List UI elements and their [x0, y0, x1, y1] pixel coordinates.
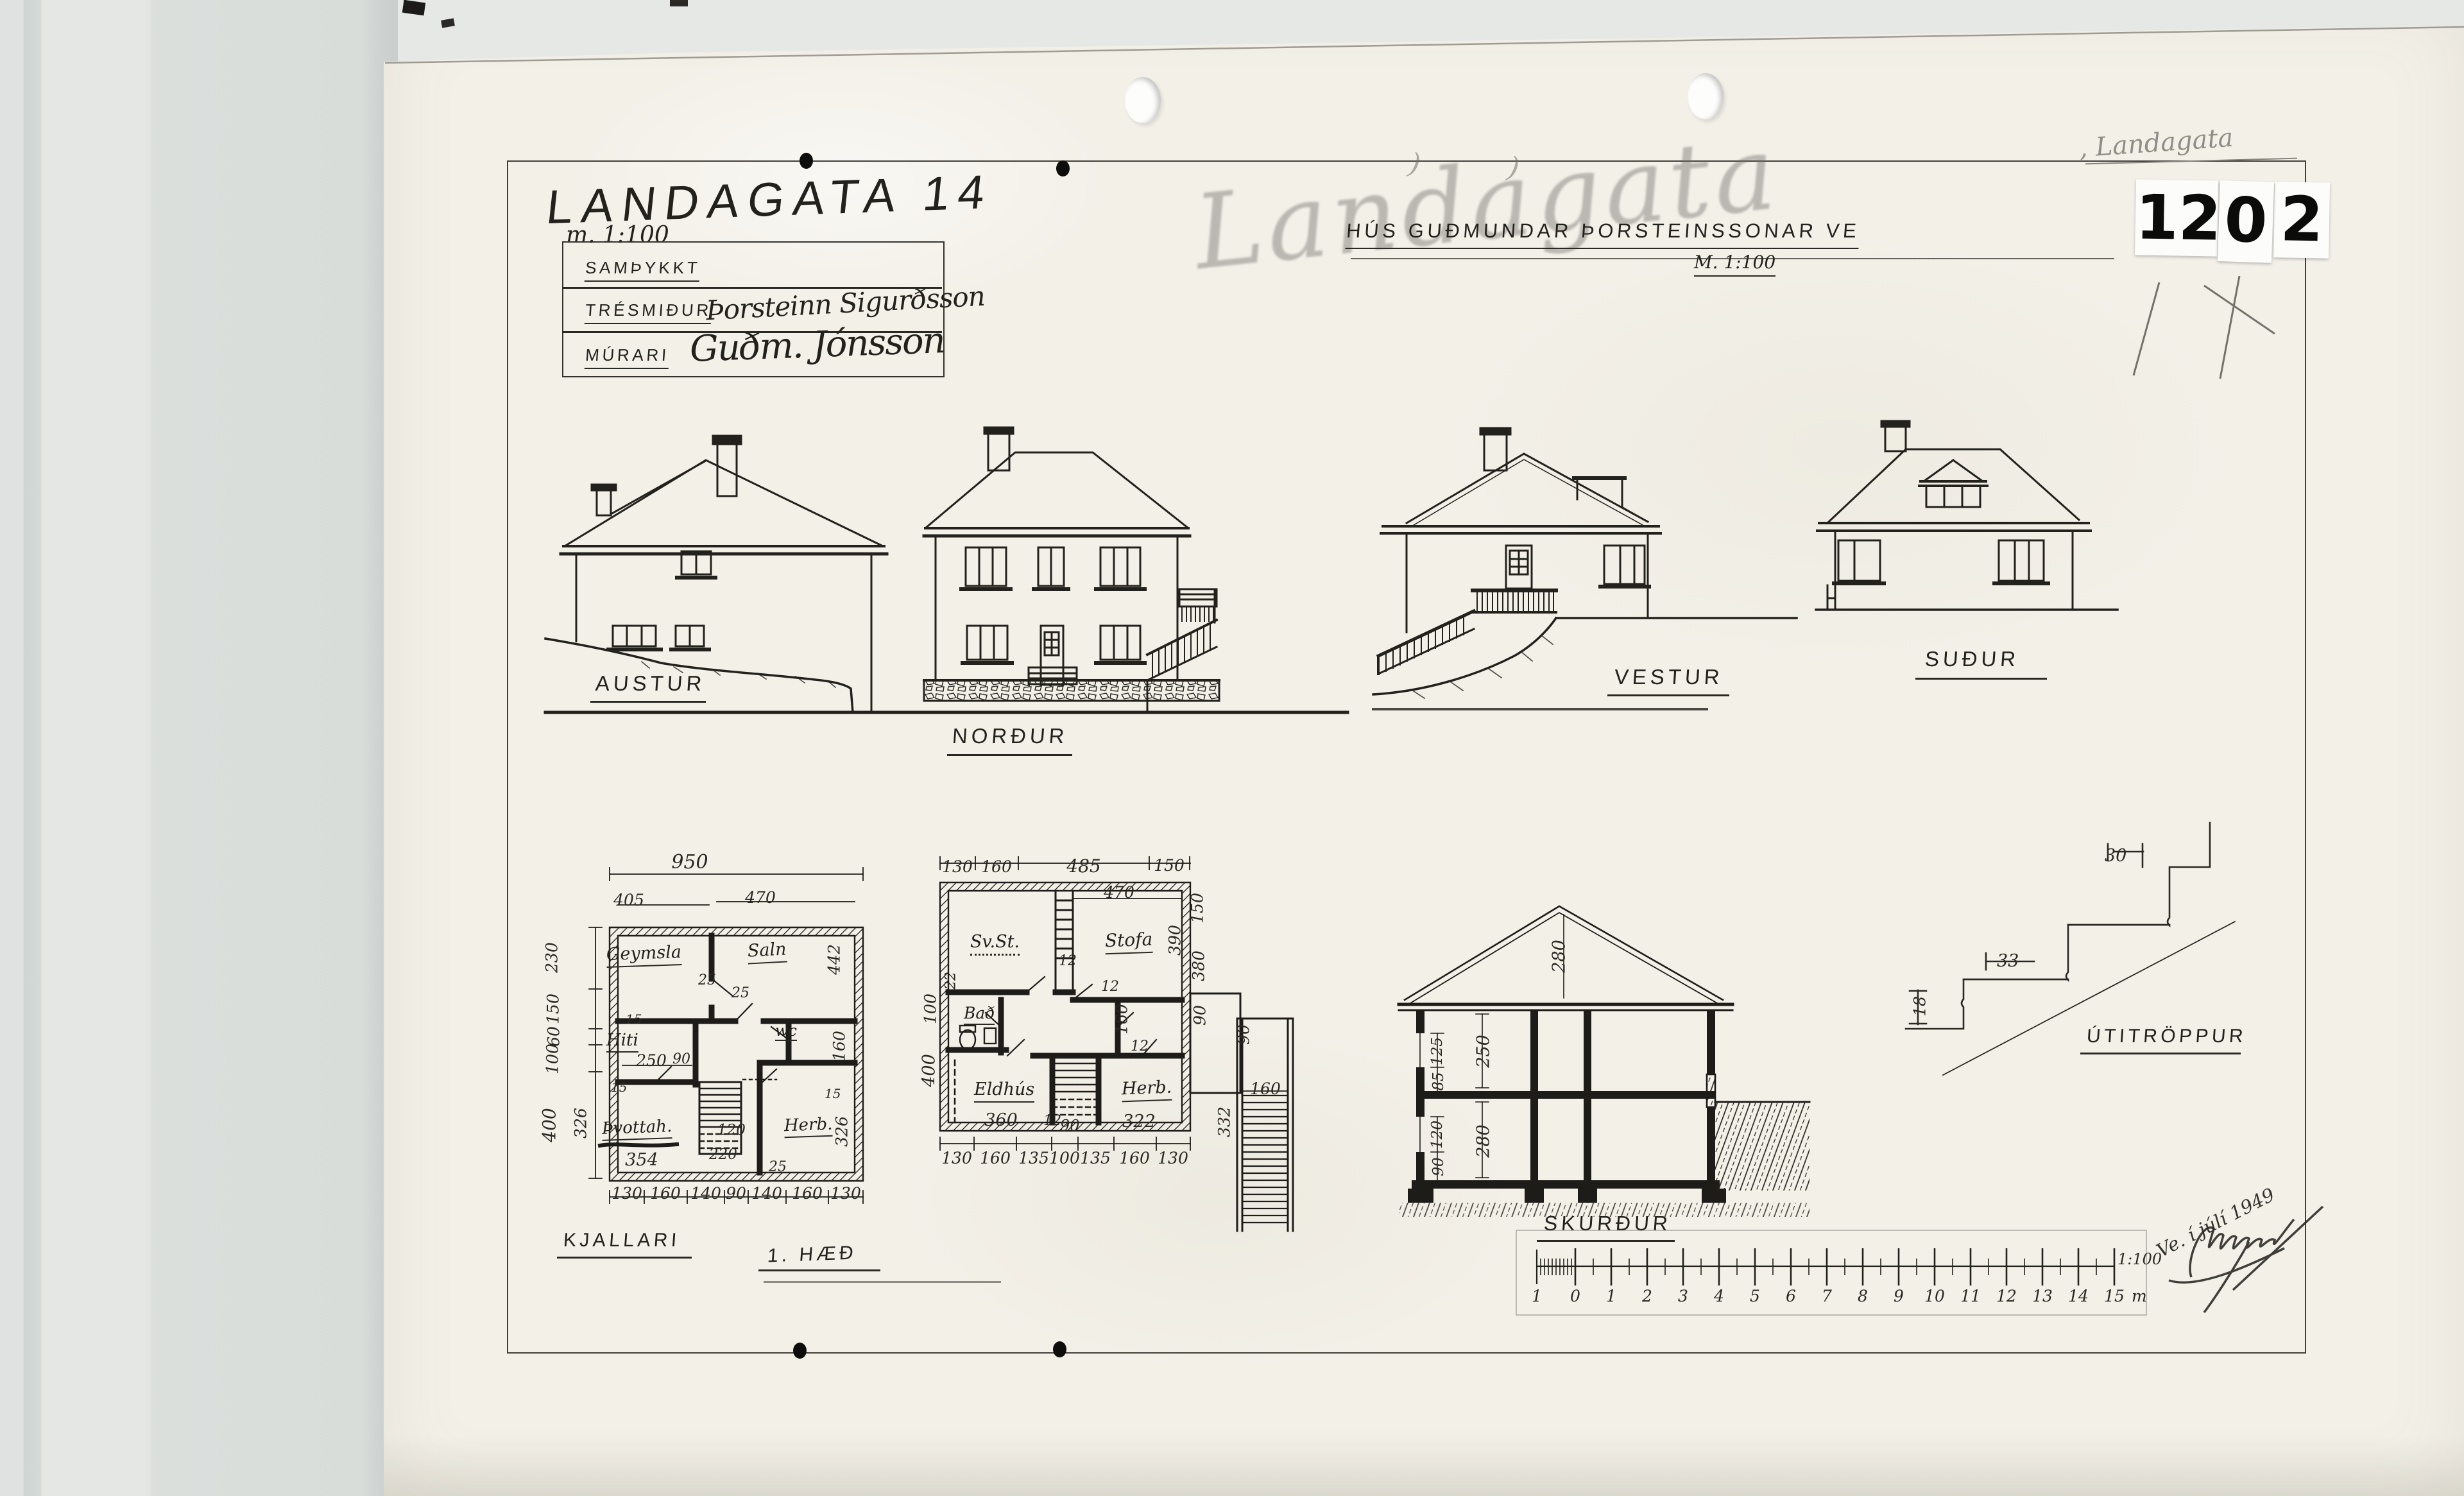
room-label-bad: Bað: [964, 1004, 995, 1025]
stamp-digits-12: 12: [2135, 179, 2218, 256]
dim: 22: [943, 972, 959, 990]
label-underline: [1607, 694, 1729, 696]
dim: 160: [1113, 1004, 1131, 1035]
label-underline: [1915, 678, 2047, 680]
scanner-background: [0, 0, 398, 1496]
plan-kjallari-drawing: [545, 854, 879, 1226]
dim: 360: [984, 1110, 1018, 1130]
dim: 100: [921, 993, 940, 1024]
dim: 15: [626, 1011, 642, 1027]
elevation-nordur-label: NORÐUR: [952, 724, 1069, 748]
scale-bar: [1511, 1223, 2159, 1325]
mason-signature: Guðm. Jónsson: [689, 320, 945, 370]
scan-artifact: [670, 0, 688, 6]
elevation-austur-label: AUSTUR: [595, 671, 706, 696]
registration-dot: [1053, 1341, 1066, 1357]
dim: 400: [539, 1108, 560, 1142]
room-label-tvottahus: Þvottah.: [601, 1117, 672, 1141]
dim: 140: [690, 1184, 721, 1203]
dim: 485: [1066, 855, 1100, 877]
label-underline: [947, 754, 1072, 756]
dim: 160: [981, 857, 1012, 876]
scale-tick-label: 13: [2032, 1287, 2053, 1305]
label-underline: [557, 1257, 692, 1259]
dim: 90: [1060, 1117, 1080, 1135]
dim: 332: [1215, 1106, 1234, 1137]
scale-tick-label: 11: [1960, 1287, 1981, 1305]
dim: 230: [543, 942, 561, 973]
dim: 90: [726, 1184, 746, 1203]
dim: 33: [1997, 951, 2019, 971]
stair-detail-label: ÚTITRÖPPUR: [2086, 1026, 2247, 1047]
dim: 90: [1235, 1024, 1253, 1045]
registration-dot: [1056, 160, 1070, 176]
dim: 15: [825, 1086, 841, 1101]
dim: 25: [698, 972, 716, 988]
dim: 950: [671, 851, 708, 873]
dim: 130: [612, 1184, 642, 1203]
dim: 125: [1429, 1037, 1446, 1065]
room-label-herb2: Herb.: [1121, 1078, 1172, 1103]
signature-flourish: [2137, 1181, 2393, 1335]
dim: 18: [1911, 996, 1929, 1017]
dim: 442: [825, 944, 844, 975]
room-label-geymsla: Geymsla: [606, 942, 681, 968]
dim: 12: [1059, 953, 1077, 969]
dim: 140: [751, 1184, 782, 1203]
scale-tick-label: 6: [1786, 1287, 1796, 1305]
dim: 160: [792, 1184, 823, 1203]
dim: 322: [1122, 1112, 1156, 1131]
dim: 135: [1018, 1149, 1049, 1167]
scale-tick-label: 5: [1750, 1287, 1760, 1305]
elevation-vestur-drawing: [1373, 417, 1797, 719]
scale-tick-label: 7: [1822, 1287, 1832, 1305]
scale-tick-label: 4: [1714, 1287, 1724, 1305]
scale-tick-label: 2: [1642, 1287, 1652, 1305]
room-label-saln: Saln: [747, 939, 787, 964]
dim: 354: [625, 1150, 658, 1170]
scanned-blueprint-landagata-14: { "header": { "title": "LANDAGATA 14", "…: [0, 0, 2464, 1496]
dim: 326: [572, 1108, 590, 1139]
dim: 30: [2105, 846, 2126, 866]
dim: 12: [1101, 979, 1119, 995]
dim: 150: [1154, 856, 1185, 875]
dim: 100: [543, 1044, 562, 1074]
plan-kjallari-label: KJALLARI: [563, 1230, 681, 1251]
elevation-sudur-drawing: [1816, 417, 2220, 687]
dim: 130: [941, 1149, 972, 1167]
dim: 130: [1158, 1149, 1188, 1167]
label-underline: [764, 1281, 1001, 1283]
elevation-nordur-drawing: [924, 424, 1347, 757]
dim: 90: [672, 1051, 690, 1067]
dim: 120: [717, 1122, 746, 1139]
room-label-wc: wc: [775, 1022, 797, 1041]
dim: 25: [769, 1159, 787, 1175]
approval-row-samthykkt: SAMÞYKKT: [585, 258, 701, 282]
plan-haed1-label: 1. HÆÐ: [767, 1242, 857, 1268]
approval-row-murari: MÚRARI: [585, 345, 670, 369]
stamp-digit-0: 0: [2218, 180, 2274, 263]
dim: 130: [942, 857, 973, 876]
dim: 120: [1429, 1121, 1446, 1149]
scale-tick-label: 1: [1532, 1287, 1542, 1305]
dim: 470: [1104, 883, 1134, 902]
dim: 400: [920, 1054, 939, 1087]
registration-dot: [793, 1343, 807, 1359]
subtitle-scale: M. 1:100: [1694, 252, 1775, 277]
scale-tick-label: 9: [1894, 1287, 1904, 1305]
pencil-strokes: [2117, 257, 2374, 398]
dim: 100: [1049, 1149, 1080, 1167]
scale-tick-label: 8: [1858, 1287, 1868, 1305]
elevation-sudur-label: SUÐUR: [1924, 647, 2021, 671]
dim: 160: [980, 1149, 1011, 1167]
scale-tick-label: 3: [1678, 1287, 1688, 1305]
approval-row-tresmidur: TRÉSMIÐUR: [585, 300, 712, 324]
punch-hole: [1688, 73, 1724, 119]
dim: 280: [1474, 1124, 1494, 1158]
dim: 150: [1188, 893, 1207, 924]
scale-tick-label: 14: [2068, 1287, 2089, 1305]
dim: 135: [1080, 1149, 1111, 1167]
dim: 250: [636, 1051, 667, 1070]
scale-tick-label: 15: [2104, 1287, 2125, 1305]
room-label-hiti: Hiti: [606, 1031, 638, 1053]
dim: 130: [830, 1184, 861, 1203]
dim: 160: [1250, 1079, 1281, 1098]
room-label-eldhus: Eldhús: [974, 1079, 1034, 1103]
dim: 405: [613, 891, 644, 909]
punch-hole: [1125, 77, 1161, 123]
dim: 280: [1550, 940, 1570, 973]
label-underline: [590, 701, 706, 703]
stair-detail-drawing: [1887, 815, 2336, 1174]
dim: 25: [732, 985, 749, 1001]
scale-tick-label: 0: [1570, 1287, 1580, 1305]
dim: 12: [1131, 1038, 1149, 1054]
elevation-vestur-label: VESTUR: [1614, 665, 1724, 689]
dim: 90: [1430, 1157, 1447, 1176]
dim: 326: [833, 1116, 851, 1147]
dim: 90: [1191, 1005, 1210, 1026]
paper-edge: [0, 0, 2464, 90]
drawing-subtitle: HÚS GUÐMUNDAR ÞORSTEINSSONAR VE: [1345, 219, 1860, 249]
scale-tick-label: 1: [1606, 1287, 1616, 1305]
dim: 250: [1474, 1035, 1494, 1068]
dim: 12: [1043, 1113, 1061, 1129]
dim: 85: [1430, 1072, 1447, 1090]
label-underline: [758, 1269, 880, 1271]
dim: 390: [1166, 925, 1185, 956]
registration-dot: [800, 153, 813, 169]
dim: 15: [611, 1079, 627, 1095]
room-label-stofa: Stofa: [1104, 929, 1153, 955]
dim: 220: [709, 1146, 737, 1163]
dim: 160: [830, 1031, 849, 1062]
dim: 160: [650, 1184, 681, 1203]
dim: 380: [1190, 950, 1208, 981]
dim: 160: [1119, 1149, 1150, 1167]
dim: 150: [544, 993, 563, 1024]
scale-tick-label: 10: [1924, 1287, 1945, 1305]
number-stamp-1202: 1202: [2135, 179, 2330, 263]
section-drawing: [1399, 895, 1810, 1242]
stamp-digit-2: 2: [2273, 182, 2330, 258]
dim: 470: [745, 888, 776, 907]
room-label-svst: Sv.St.: [970, 932, 1020, 956]
scale-tick-label: 12: [1996, 1287, 2017, 1305]
label-underline: [2080, 1053, 2241, 1054]
room-label-herb: Herb.: [783, 1115, 833, 1139]
